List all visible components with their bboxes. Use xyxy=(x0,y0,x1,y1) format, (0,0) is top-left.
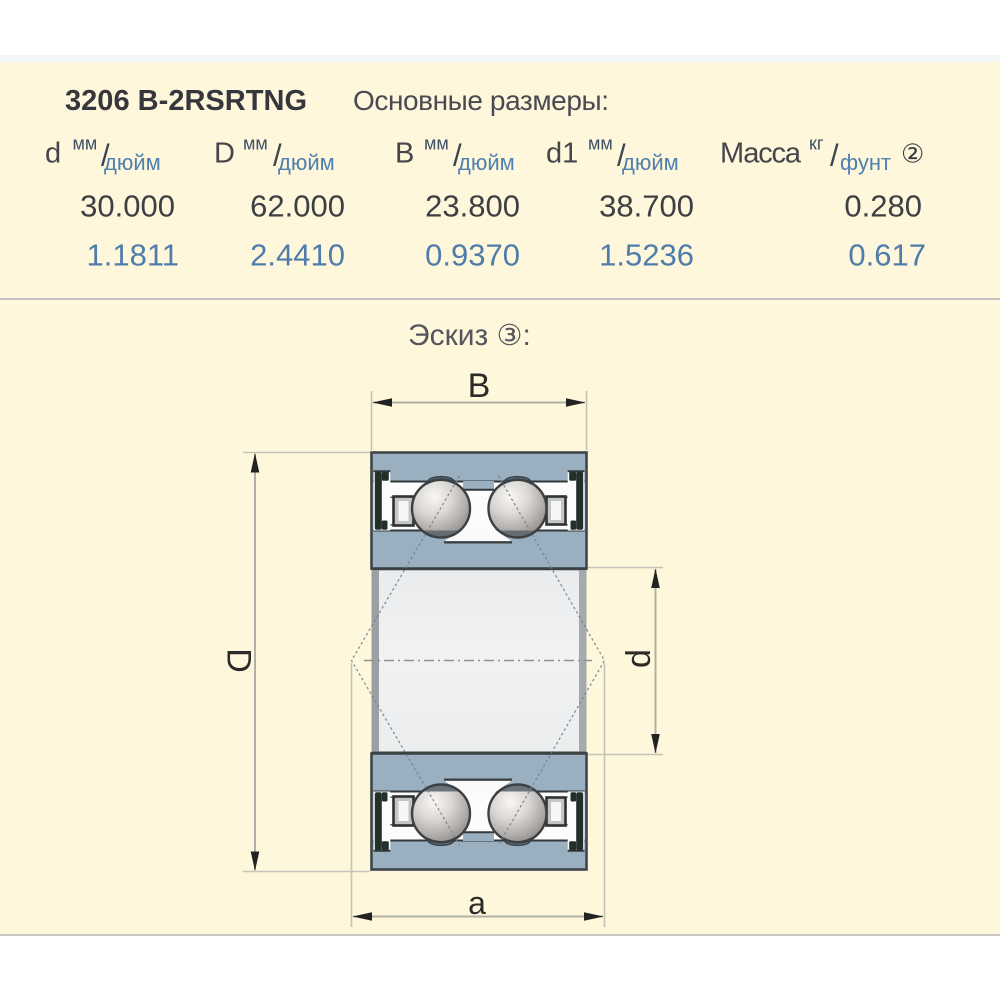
svg-text:дюйм: дюйм xyxy=(104,150,161,175)
svg-text:23.800: 23.800 xyxy=(425,189,520,224)
svg-text:мм: мм xyxy=(424,134,449,154)
svg-text:0.9370: 0.9370 xyxy=(425,238,520,273)
svg-text:кг: кг xyxy=(809,134,824,154)
svg-text:0.280: 0.280 xyxy=(844,189,922,224)
svg-text:38.700: 38.700 xyxy=(599,189,694,224)
svg-text:Масса: Масса xyxy=(720,138,802,170)
svg-text:фунт: фунт xyxy=(840,150,891,175)
svg-text:дюйм: дюйм xyxy=(458,150,515,175)
svg-text:62.000: 62.000 xyxy=(250,189,345,224)
svg-text:дюйм: дюйм xyxy=(622,150,679,175)
svg-text:1.5236: 1.5236 xyxy=(599,238,694,273)
svg-text:0.617: 0.617 xyxy=(848,238,926,273)
svg-text:1.1811: 1.1811 xyxy=(86,238,179,273)
svg-text:Основные размеры:: Основные размеры: xyxy=(353,85,609,116)
svg-text:d: d xyxy=(620,649,658,668)
svg-text:②: ② xyxy=(901,139,924,169)
svg-text:B: B xyxy=(395,138,414,170)
svg-text:/: / xyxy=(830,138,839,173)
svg-text:D: D xyxy=(214,138,235,170)
svg-text:мм: мм xyxy=(588,134,613,154)
svg-text:d: d xyxy=(45,138,61,170)
svg-text:дюйм: дюйм xyxy=(278,150,335,175)
svg-text:d1: d1 xyxy=(546,138,578,170)
svg-text:30.000: 30.000 xyxy=(80,189,175,224)
svg-text:2.4410: 2.4410 xyxy=(250,238,345,273)
svg-text:Эскиз ③:: Эскиз ③: xyxy=(408,319,531,352)
svg-text:мм: мм xyxy=(73,134,98,154)
svg-text:3206 B-2RSRTNG: 3206 B-2RSRTNG xyxy=(65,85,307,117)
svg-text:мм: мм xyxy=(243,134,268,154)
svg-text:B: B xyxy=(468,367,491,405)
svg-text:a: a xyxy=(468,885,486,921)
svg-text:D: D xyxy=(220,648,258,673)
